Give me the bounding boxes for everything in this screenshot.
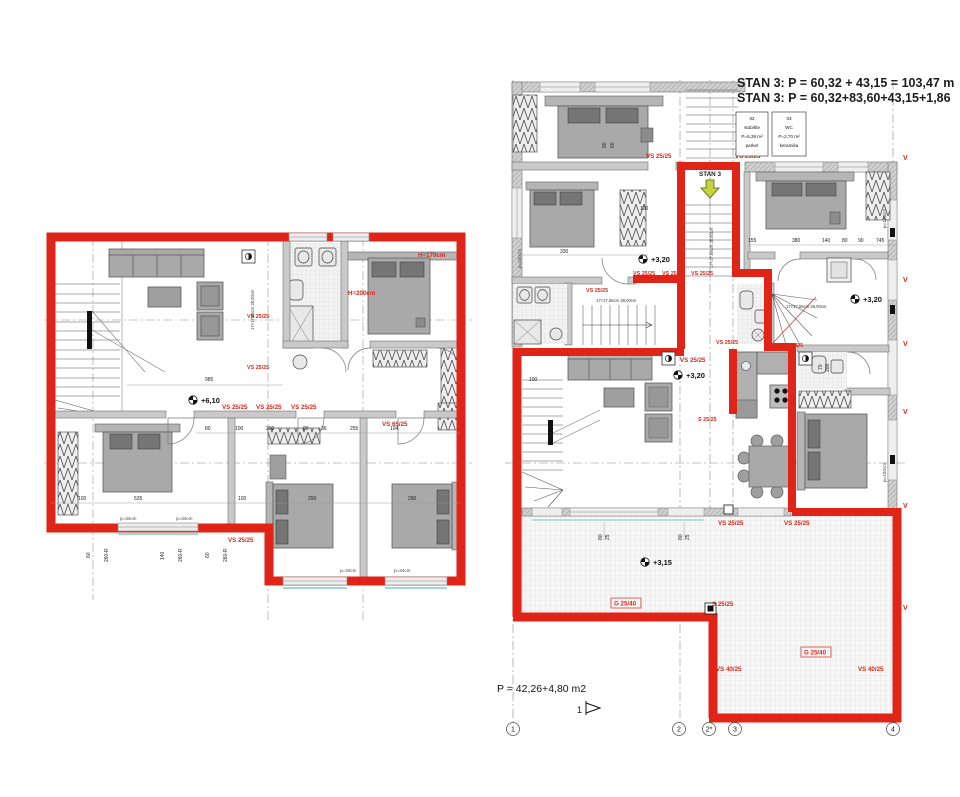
beam-label: VS 25/25	[291, 404, 317, 411]
plan-title-line1: STAN 3: P = 60,32 + 43,15 = 103,47 m	[737, 76, 954, 90]
svg-text:02: 02	[749, 116, 755, 121]
room-box-wc: 03 WC P=2,70 m² keramika	[772, 112, 806, 156]
stairs-living	[522, 380, 600, 507]
electrical-panel-icon	[662, 352, 675, 365]
beam-label: VS 25/25	[256, 404, 282, 411]
stair-break-bar	[548, 420, 553, 445]
height-label: H=170cm	[418, 252, 446, 259]
area-note: P = 42,26+4,80 m2	[497, 683, 586, 695]
beam-label: VS 25/25	[247, 365, 269, 371]
level-marker-icon	[641, 558, 649, 566]
dim: 260-R	[178, 548, 184, 562]
dim: 985	[205, 377, 214, 383]
level-marker-icon	[674, 371, 682, 379]
room-box-stubiste: 02 stubište P=6,39 m² parket	[736, 112, 768, 156]
dim: 260-R	[223, 548, 229, 562]
svg-text:03: 03	[786, 116, 792, 121]
dim: 80	[678, 534, 684, 540]
coffee-table	[148, 287, 181, 307]
grid-bubbles: 1 2 2* 3 4	[507, 723, 900, 736]
parapet-label: p=100cm	[517, 249, 522, 268]
dim: 80	[205, 426, 211, 432]
beam-label: VS 25/25	[691, 271, 713, 277]
winder-stairs-ur	[772, 294, 817, 345]
dim: 100	[78, 496, 87, 502]
svg-text:1: 1	[511, 727, 515, 734]
height-label: H=200cm	[348, 290, 376, 297]
beam-label: VS 40/25	[716, 666, 742, 673]
level-marker-icon	[639, 255, 647, 263]
svg-text:P=2,70 m²: P=2,70 m²	[778, 134, 800, 139]
beam-label: S 25/25	[712, 601, 734, 608]
svg-text:V: V	[903, 341, 908, 348]
dim: 104	[390, 426, 399, 432]
beam-label: VS 25/25	[662, 271, 684, 277]
level-value: +3,20	[651, 255, 670, 264]
beam-label: VS 25/25	[228, 537, 254, 544]
svg-text:P=6,39 m²: P=6,39 m²	[741, 134, 763, 139]
svg-text:3: 3	[733, 727, 737, 734]
stair-note: 17×17,65cm 28,00cm	[709, 227, 714, 268]
dim: 100	[235, 426, 244, 432]
dim: 60	[205, 552, 211, 558]
right-plan: 17×17,65cm 28,00cm 17×17,65cm 28,00cm ST…	[497, 76, 954, 736]
svg-text:WC: WC	[785, 125, 793, 130]
svg-text:V: V	[903, 155, 908, 162]
bedroom-lr	[797, 391, 867, 490]
dim: 535	[134, 496, 143, 502]
dim: 200	[266, 426, 275, 432]
beam-label: VS 25/25	[716, 340, 738, 346]
beam-label: VS 25/25	[222, 404, 248, 411]
entrance-label: STAN 3	[699, 171, 721, 178]
bedroom-ul-1	[513, 95, 663, 158]
dim: 260-R	[104, 548, 110, 562]
floor-plan-drawing: +6,10 VS 25/25 VS 25/25 VS 25/25 VS 65/2…	[0, 0, 960, 797]
dim: 380	[792, 238, 801, 244]
stair-break-bar	[87, 311, 92, 349]
svg-text:G 25/40: G 25/40	[614, 601, 637, 608]
dim: 255	[350, 426, 359, 432]
left-plan: +6,10 VS 25/25 VS 25/25 VS 25/25 VS 65/2…	[51, 233, 461, 588]
level-value: +3,20	[686, 371, 705, 380]
parapet-label: p=34cm	[340, 568, 357, 573]
dim: 100	[529, 377, 538, 383]
parapet-label: p=34cm	[120, 516, 137, 521]
parapet-label: p=34cm	[176, 516, 193, 521]
dim: 25	[685, 534, 691, 540]
dining-set	[738, 435, 791, 498]
beam-label: VS 25/25	[781, 343, 803, 349]
electrical-panel-icon	[799, 352, 812, 365]
stair-note: 17×17,65cm 28,00cm	[786, 304, 827, 309]
dim: 36	[321, 426, 327, 432]
beam-label: VS 25/25	[586, 288, 608, 294]
stair-note: 17×17,65cm 28,00cm	[250, 289, 255, 330]
electrical-panel-icon	[242, 250, 255, 263]
parapet-label: p=34cm	[394, 568, 411, 573]
dim: 70	[818, 364, 824, 370]
parapet-label: p=100cm	[882, 209, 887, 228]
dim: 60	[86, 552, 92, 558]
svg-text:4: 4	[891, 727, 895, 734]
dim: 60	[610, 142, 616, 148]
bedroom-bottom-left	[58, 424, 180, 515]
dim: 25	[605, 534, 611, 540]
beam-label: VS 25/25	[680, 357, 706, 364]
svg-text:V: V	[903, 503, 908, 510]
dim: 155	[748, 238, 757, 244]
lounge-chairs	[197, 282, 223, 340]
bedroom-ur	[756, 172, 890, 229]
section-marker-icon	[586, 701, 600, 715]
level-value: +3,15	[653, 558, 672, 567]
floor-plan-page: { "title": { "line1": "STAN 3: P = 60,32…	[0, 0, 960, 797]
kitchen	[736, 352, 791, 418]
vent-labels: V V V V V V	[903, 155, 908, 612]
svg-text:parket: parket	[746, 143, 759, 148]
dim: 80	[842, 238, 848, 244]
svg-text:stubište: stubište	[744, 125, 760, 130]
level-marker-icon	[851, 295, 859, 303]
svg-text:V: V	[903, 605, 908, 612]
dim: 100	[640, 206, 649, 212]
svg-text:V: V	[903, 409, 908, 416]
parapet-label: p=100cm	[882, 463, 887, 482]
entrance-arrow-icon	[701, 180, 719, 198]
svg-text:keramika: keramika	[780, 143, 799, 148]
dim: 200	[825, 363, 831, 372]
level-marker-icon	[189, 396, 197, 404]
beam-label: VS 25/25	[633, 271, 655, 277]
dim: 140	[160, 551, 166, 560]
level-value: +3,20	[863, 295, 882, 304]
dim: 290	[408, 496, 417, 502]
svg-text:2*: 2*	[706, 727, 713, 734]
stair-note: 17×17,65cm 28,00cm	[596, 298, 637, 303]
level-value: +6,10	[201, 396, 220, 405]
dim: 745	[876, 238, 885, 244]
dim: 330	[560, 249, 569, 255]
dim: 90	[858, 238, 864, 244]
dim: 100	[238, 496, 247, 502]
beam-label: VS 25/25	[718, 520, 744, 527]
bedroom-ul-2	[526, 182, 646, 284]
plan-title-line2: STAN 3: P = 60,32+83,60+43,15+1,86	[737, 91, 951, 105]
sofa	[109, 249, 204, 277]
section-number: 1	[577, 705, 582, 715]
svg-text:V: V	[903, 277, 908, 284]
svg-text:2: 2	[677, 727, 681, 734]
beam-label: S 25/25	[698, 417, 717, 423]
mini-stairs-ul	[583, 305, 655, 345]
living-room	[568, 352, 672, 442]
svg-text:G 25/40: G 25/40	[804, 650, 827, 657]
dim: 140	[822, 238, 831, 244]
dim: 90	[602, 142, 608, 148]
hall-ur	[778, 258, 876, 282]
dim: 80	[598, 534, 604, 540]
bedroom-bottom-mid-1	[266, 428, 333, 550]
beam-label: VS 40/25	[858, 666, 884, 673]
dim: 80	[303, 426, 309, 432]
beam-label: VS 25/25	[784, 520, 810, 527]
dim: 290	[308, 496, 317, 502]
beam-label: VS 25/25	[646, 153, 672, 160]
